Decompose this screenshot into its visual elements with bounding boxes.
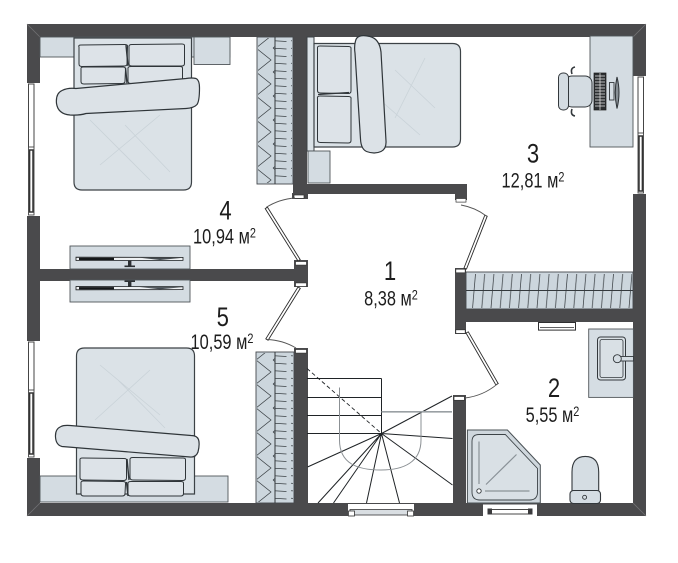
svg-text:2: 2 xyxy=(548,374,560,404)
svg-text:5,55 м2: 5,55 м2 xyxy=(526,403,580,426)
svg-text:5: 5 xyxy=(217,303,229,333)
svg-text:3: 3 xyxy=(527,140,539,170)
svg-text:1: 1 xyxy=(384,257,396,287)
svg-text:10,59 м2: 10,59 м2 xyxy=(191,330,254,353)
svg-text:8,38 м2: 8,38 м2 xyxy=(364,287,418,310)
svg-text:10,94 м2: 10,94 м2 xyxy=(193,225,256,248)
svg-text:4: 4 xyxy=(219,197,231,227)
svg-text:12,81 м2: 12,81 м2 xyxy=(502,169,565,192)
